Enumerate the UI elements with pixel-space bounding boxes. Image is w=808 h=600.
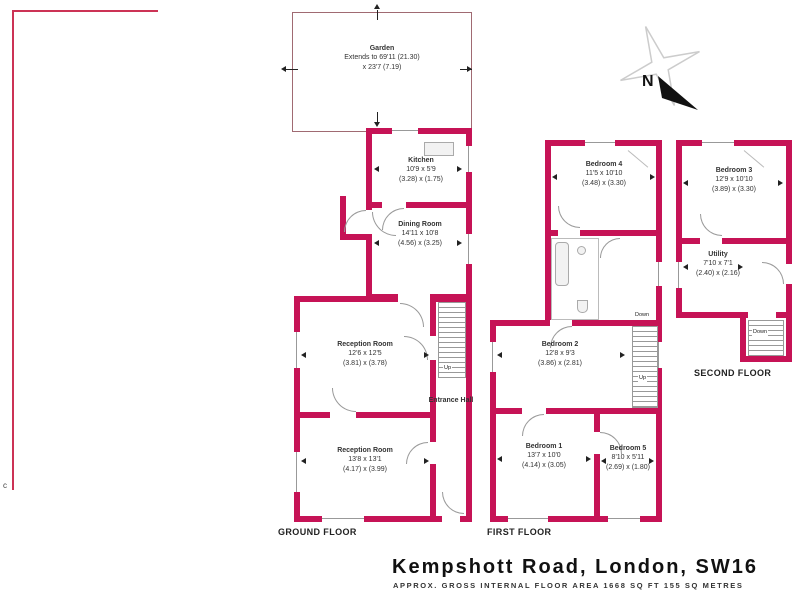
basin-fixture: [577, 246, 586, 255]
reception-connecting-door-gap: [330, 412, 356, 418]
room-dims-metric: (4.56) x (3.25): [380, 239, 460, 248]
bedroom4-door-gap: [558, 230, 580, 236]
dimension-arrow-left-icon: [683, 264, 688, 270]
floorplan-page: c Garden Extends to 69'11 (21.30) x 23'7…: [0, 0, 808, 600]
tick-stem: [286, 69, 298, 70]
garden-dim-line1: Extends to 69'11 (21.30): [302, 53, 462, 62]
page-subtitle: APPROX. GROSS INTERNAL FLOOR AREA 1668 S…: [393, 581, 744, 590]
bedroom1-window: [508, 516, 548, 522]
room-dims-imperial: 12'8 x 9'3: [512, 349, 608, 358]
first-floor-label: FIRST FLOOR: [487, 527, 551, 537]
room-name: Bedroom 3: [686, 166, 782, 175]
dimension-arrow-left-icon: [374, 166, 379, 172]
dimension-arrow-left-icon: [374, 240, 379, 246]
room-dims-metric: (3.86) x (2.81): [512, 359, 608, 368]
garden-label: Garden Extends to 69'11 (21.30) x 23'7 (…: [302, 44, 462, 72]
dimension-arrow-left-icon: [683, 180, 688, 186]
dimension-arrow-down-icon: [374, 122, 380, 127]
dimension-arrow-right-icon: [586, 456, 591, 462]
compass-rose: N: [598, 18, 728, 118]
room-name: Reception Room: [310, 340, 420, 349]
room-name: Bedroom 4: [558, 160, 650, 169]
dimension-arrow-right-icon: [649, 458, 654, 464]
room-name: Bedroom 5: [596, 444, 660, 453]
garden-dim-line2: x 23'7 (7.19): [302, 63, 462, 72]
dimension-arrow-right-icon: [620, 352, 625, 358]
bedroom5-window: [608, 516, 640, 522]
stairs-opening-gap: [748, 312, 776, 318]
bedroom3-label: Bedroom 3 12'9 x 10'10 (3.89) x (3.30): [686, 166, 782, 194]
room-dims-metric: (4.14) x (3.05): [498, 461, 590, 470]
dimension-arrow-left-icon: [301, 352, 306, 358]
kitchen-window: [466, 146, 472, 172]
dimension-arrow-left-icon: [497, 352, 502, 358]
room-name: Dining Room: [380, 220, 460, 229]
room-dims-metric: (2.40) x (2.16): [682, 269, 754, 278]
room-dims-imperial: 11'5 x 10'10: [558, 169, 650, 178]
dimension-arrow-right-icon: [457, 166, 462, 172]
bedroom4-window: [585, 140, 615, 146]
reception2-label: Reception Room 13'8 x 13'1 (4.17) x (3.9…: [310, 446, 420, 474]
landing-window: [656, 262, 662, 286]
dimension-arrow-right-icon: [424, 352, 429, 358]
stairs-up-label: Up: [638, 376, 647, 382]
reception1-door-gap: [430, 336, 436, 360]
bedroom2-door-gap: [550, 320, 572, 326]
kitchen-label: Kitchen 10'9 x 5'9 (3.28) x (1.75): [386, 156, 456, 184]
second-floor-label: SECOND FLOOR: [694, 368, 771, 378]
room-dims-imperial: 12'6 x 12'5: [310, 349, 420, 358]
dimension-arrow-right-icon: [738, 264, 743, 270]
dining-window: [466, 234, 472, 264]
room-name: Kitchen: [386, 156, 456, 165]
hall-door-gap: [430, 442, 436, 464]
stairs-up-label: Up: [443, 366, 452, 372]
kitchen-appliance: [424, 142, 454, 156]
bedroom3-window: [702, 140, 734, 146]
stairs-down-label: Down: [752, 330, 768, 336]
garden-name: Garden: [302, 44, 462, 53]
bedroom1-label: Bedroom 1 13'7 x 10'0 (4.14) x (3.05): [498, 442, 590, 470]
side-door-arc: [344, 210, 366, 232]
room-dims-metric: (2.69) x (1.80): [596, 463, 660, 472]
reception2-front-window: [322, 516, 364, 522]
boundary-line-horizontal: [12, 10, 158, 12]
room-dims-metric: (3.89) x (3.30): [686, 185, 782, 194]
utility-door-gap: [786, 264, 792, 284]
dimension-arrow-right-icon: [650, 174, 655, 180]
tick-stem: [377, 112, 378, 122]
second-floor-stairs: [748, 320, 784, 356]
page-title: Kempshott Road, London, SW16: [392, 556, 758, 579]
bedroom2-label: Bedroom 2 12'8 x 9'3 (3.86) x (2.81): [512, 340, 608, 368]
kitchen-window: [392, 128, 418, 134]
stairs-down-label: Down: [634, 313, 650, 319]
room-name: Utility: [682, 250, 754, 259]
side-return-wall: [340, 234, 372, 240]
bedroom2-window: [490, 342, 496, 372]
dining-label: Dining Room 14'11 x 10'8 (4.56) x (3.25): [380, 220, 460, 248]
room-dims-metric: (4.17) x (3.99): [310, 465, 420, 474]
reception2-window: [294, 452, 300, 492]
ground-floor-label: GROUND FLOOR: [278, 527, 357, 537]
boundary-line-vertical: [12, 10, 14, 490]
room-dims-imperial: 12'9 x 10'10: [686, 175, 782, 184]
bathtub-fixture: [555, 242, 569, 286]
room-dims-imperial: 13'8 x 13'1: [310, 455, 420, 464]
reception1-label: Reception Room 12'6 x 12'5 (3.81) x (3.7…: [310, 340, 420, 368]
room-dims-metric: (3.28) x (1.75): [386, 175, 456, 184]
dimension-arrow-right-icon: [467, 66, 472, 72]
room-name: Reception Room: [310, 446, 420, 455]
front-door-gap: [442, 516, 460, 522]
room-name: Bedroom 1: [498, 442, 590, 451]
dimension-arrow-up-icon: [374, 4, 380, 9]
reception1-window: [294, 332, 300, 368]
bedroom3-door-gap: [700, 238, 722, 244]
dimension-arrow-right-icon: [778, 180, 783, 186]
compass-north-letter: N: [642, 73, 654, 90]
dimension-arrow-left-icon: [497, 456, 502, 462]
bedroom4-label: Bedroom 4 11'5 x 10'10 (3.48) x (3.30): [558, 160, 650, 188]
toilet-fixture: [577, 300, 588, 313]
tick-stem: [377, 10, 378, 20]
dimension-arrow-right-icon: [424, 458, 429, 464]
dimension-arrow-left-icon: [552, 174, 557, 180]
room-dims-imperial: 14'11 x 10'8: [380, 229, 460, 238]
room-dims-metric: (3.48) x (3.30): [558, 179, 650, 188]
dimension-arrow-left-icon: [301, 458, 306, 464]
first-floor-stairs: [632, 326, 658, 408]
utility-label: Utility 7'10 x 7'1 (2.40) x (2.16): [682, 250, 754, 278]
dimension-arrow-left-icon: [601, 458, 606, 464]
entrance-hall-label: Entrance Hall: [426, 396, 476, 405]
room-dims-metric: (3.81) x (3.78): [310, 359, 420, 368]
dimension-arrow-right-icon: [457, 240, 462, 246]
room-dims-imperial: 7'10 x 7'1: [682, 259, 754, 268]
room-dims-imperial: 10'9 x 5'9: [386, 165, 456, 174]
room-dims-imperial: 13'7 x 10'0: [498, 451, 590, 460]
boundary-mark: c: [3, 481, 7, 490]
compass-star-icon: [621, 27, 700, 106]
room-name: Entrance Hall: [426, 396, 476, 405]
dining-hall-opening: [398, 294, 430, 303]
dimension-arrow-left-icon: [281, 66, 286, 72]
room-name: Bedroom 2: [512, 340, 608, 349]
